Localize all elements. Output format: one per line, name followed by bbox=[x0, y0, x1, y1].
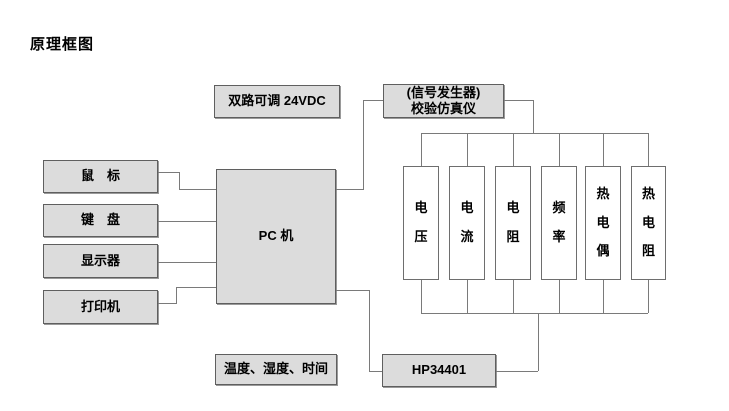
wire-pc-hp34401-h1 bbox=[336, 290, 369, 291]
channel-current-label: 电流 bbox=[460, 194, 474, 251]
block-keyboard-label: 键 盘 bbox=[81, 212, 120, 228]
block-display-label: 显示器 bbox=[81, 253, 120, 269]
wire-simulator-bus-h bbox=[504, 100, 533, 101]
wire-pc-simulator-h2 bbox=[363, 100, 383, 101]
channel-box-resistance: 电阻 bbox=[495, 166, 531, 280]
channel-voltage-label: 电压 bbox=[414, 194, 428, 251]
wire-simulator-bus-v bbox=[533, 100, 534, 133]
channel-box-voltage: 电压 bbox=[403, 166, 439, 280]
bottom-drop-rtd bbox=[648, 280, 649, 313]
bottom-drop-voltage bbox=[421, 280, 422, 313]
block-signal-generator-line2: 校验仿真仪 bbox=[411, 101, 476, 117]
block-printer: 打印机 bbox=[43, 290, 158, 324]
top-bus-line bbox=[421, 133, 648, 134]
bottom-bus-line bbox=[421, 313, 648, 314]
channel-resistance-label: 电阻 bbox=[506, 194, 520, 251]
block-display: 显示器 bbox=[43, 244, 158, 278]
block-psu-24vdc: 双路可调 24VDC bbox=[214, 85, 340, 118]
diagram-title: 原理框图 bbox=[30, 33, 94, 54]
top-drop-resistance bbox=[513, 133, 514, 166]
wire-pc-simulator-v bbox=[363, 100, 364, 190]
top-drop-current bbox=[467, 133, 468, 166]
channel-box-frequency: 频率 bbox=[541, 166, 577, 280]
block-psu-label: 双路可调 24VDC bbox=[228, 93, 326, 109]
block-pc: PC 机 bbox=[216, 169, 336, 304]
channel-rtd-label: 热电阻 bbox=[642, 180, 656, 266]
top-drop-voltage bbox=[421, 133, 422, 166]
wire-bus-hp34401-v bbox=[538, 313, 539, 371]
block-printer-label: 打印机 bbox=[81, 299, 120, 315]
bottom-drop-resistance bbox=[513, 280, 514, 313]
wire-pc-hp34401-h2 bbox=[369, 371, 382, 372]
block-mouse: 鼠 标 bbox=[43, 160, 158, 193]
top-drop-thermocouple bbox=[603, 133, 604, 166]
channel-thermocouple-label: 热电偶 bbox=[596, 180, 610, 266]
wire-mouse-pc-v bbox=[179, 172, 180, 189]
wire-pc-hp34401-v bbox=[369, 290, 370, 372]
wire-mouse-pc-h2 bbox=[179, 189, 216, 190]
top-drop-frequency bbox=[559, 133, 560, 166]
channel-frequency-label: 频率 bbox=[552, 194, 566, 251]
block-hp34401-label: HP34401 bbox=[412, 362, 466, 378]
wire-mouse-pc-h1 bbox=[158, 172, 179, 173]
wire-display-pc bbox=[158, 262, 216, 263]
bottom-drop-frequency bbox=[559, 280, 560, 313]
block-environment: 温度、湿度、时间 bbox=[215, 354, 337, 385]
wire-printer-pc-v bbox=[176, 287, 177, 304]
block-signal-generator-line1: (信号发生器) bbox=[407, 85, 481, 101]
block-hp34401-multimeter: HP34401 bbox=[382, 354, 496, 387]
wire-keyboard-pc bbox=[158, 221, 216, 222]
block-environment-label: 温度、湿度、时间 bbox=[224, 361, 328, 377]
block-signal-generator-calibrator: (信号发生器) 校验仿真仪 bbox=[383, 84, 504, 118]
bottom-drop-current bbox=[467, 280, 468, 313]
wire-pc-simulator-h1 bbox=[336, 189, 363, 190]
block-keyboard: 键 盘 bbox=[43, 204, 158, 237]
wire-printer-pc-h1 bbox=[158, 303, 176, 304]
channel-box-thermocouple: 热电偶 bbox=[585, 166, 621, 280]
wire-printer-pc-h2 bbox=[176, 287, 216, 288]
wire-bus-hp34401-h bbox=[496, 371, 538, 372]
diagram-canvas: 原理框图 双路可调 24VDC (信号发生器) 校验仿真仪 鼠 标 键 盘 显示… bbox=[0, 0, 729, 411]
top-drop-rtd bbox=[648, 133, 649, 166]
bottom-drop-thermocouple bbox=[603, 280, 604, 313]
block-pc-label: PC 机 bbox=[259, 228, 294, 244]
block-mouse-label: 鼠 标 bbox=[81, 168, 120, 184]
channel-box-current: 电流 bbox=[449, 166, 485, 280]
channel-box-rtd: 热电阻 bbox=[631, 166, 666, 280]
